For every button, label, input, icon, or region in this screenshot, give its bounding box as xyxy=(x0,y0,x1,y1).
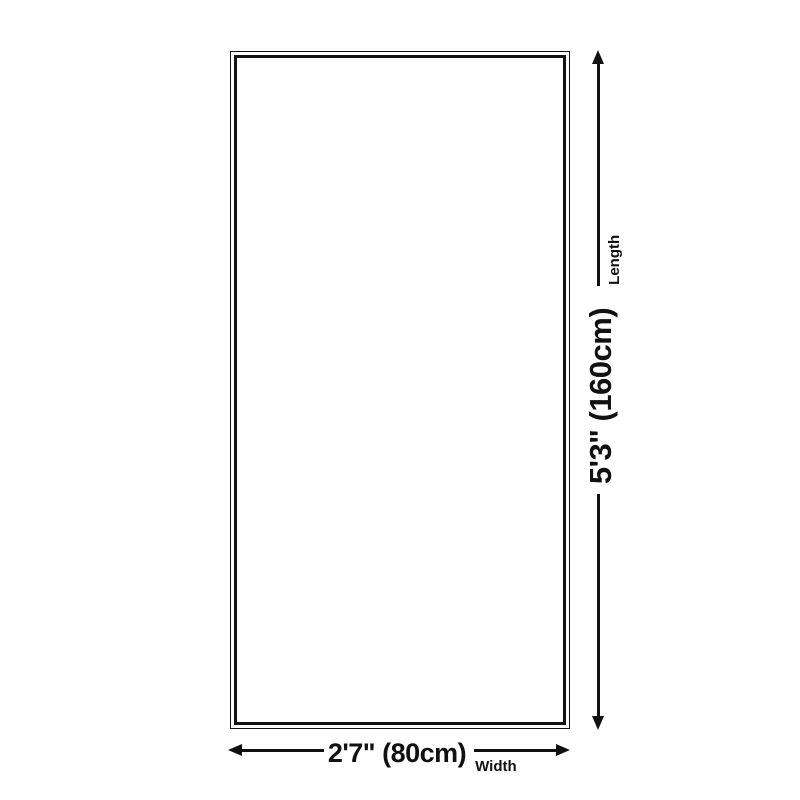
product-outline-inner xyxy=(234,55,566,725)
length-arrow-line-lower xyxy=(597,494,600,718)
length-dimension: 5'3" (160cm) Length xyxy=(575,50,621,730)
width-value: 2'7" (80cm) xyxy=(328,738,466,769)
product-outline xyxy=(230,51,570,729)
width-arrow-line-right: Width xyxy=(474,749,558,752)
width-arrow-line-left xyxy=(240,749,324,752)
dimension-diagram: 5'3" (160cm) Length 2'7" (80cm) Width xyxy=(0,0,800,800)
length-value: 5'3" (160cm) xyxy=(583,308,619,484)
arrow-right-icon xyxy=(556,744,570,756)
arrow-down-icon xyxy=(592,716,604,730)
width-label: Width xyxy=(475,758,517,775)
width-dimension: 2'7" (80cm) Width xyxy=(228,727,570,773)
length-arrow-line-upper: Length xyxy=(597,62,600,286)
length-label: Length xyxy=(606,235,623,285)
